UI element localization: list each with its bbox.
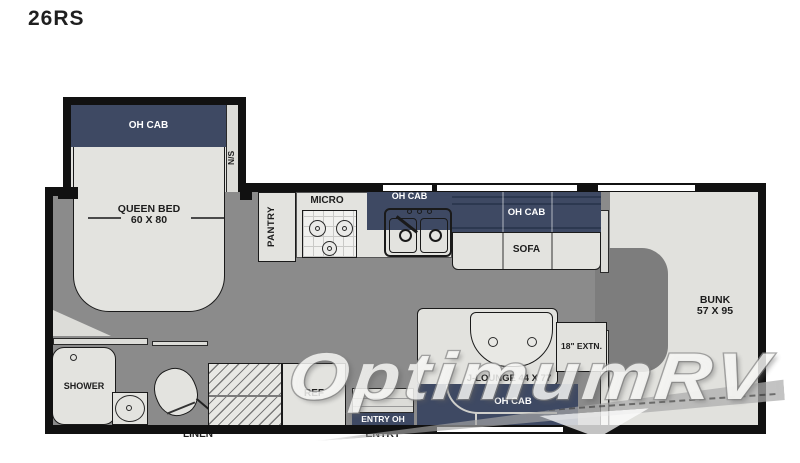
lounge-ohcab-label: OH CAB [480,397,546,407]
window-kitchen [383,185,432,191]
nightstand-label: N/S [227,138,236,178]
rv-floorplan: 26RS BUNK 57 X 95 OH CAB N/S QUEEN BED 6… [0,0,800,463]
sink-drain-right [429,229,442,242]
entry-ohcab-label: ENTRY OH [352,415,414,424]
shower-label: SHOWER [52,382,116,391]
burner-2-center [342,226,347,231]
page-title: 26RS [28,8,85,30]
bath-sink-drain [126,405,132,411]
queen-bed-label: QUEEN BED 60 X 80 [89,204,209,226]
linen-cabinet [208,363,282,427]
pantry [258,192,296,262]
wall-stub-right [240,192,252,200]
entry-door-opening [437,427,563,432]
bedroom-ohcab-label: OH CAB [71,121,226,132]
pantry-label: PANTRY [267,197,277,257]
wall-stub-left [58,192,78,199]
sofa-label: SOFA [452,245,601,256]
sink-drain-left [399,229,412,242]
entry-steps [352,388,414,413]
faucet-handle-2 [417,209,422,214]
window-sofa [437,185,577,191]
sofa-ohcab-label: OH CAB [452,208,601,218]
ref-label: REF [282,389,346,400]
bunk-size: 57 X 95 [697,305,733,317]
extension-label: 18" EXTN. [554,342,609,351]
bath-partition-left [53,338,148,345]
wall-left [45,187,53,434]
wall-right [758,183,766,434]
wall-top-main [238,183,766,192]
cab-wall-strip-upper [600,210,609,273]
wall-bottom [45,425,766,434]
burner-3-center [327,246,332,251]
shower-drain [70,354,77,361]
kitchen-sink [384,208,452,257]
cupholder-2 [527,337,537,347]
micro-label: MICRO [296,196,358,207]
bunk-label: BUNK 57 X 95 [660,295,770,317]
cupholder-1 [488,337,498,347]
window-bunk [598,185,695,191]
queen-bed [73,147,225,312]
bath-partition-right [152,341,208,346]
bed-size: 60 X 80 [131,214,167,226]
faucet-handle-1 [407,209,412,214]
jlounge-label: J-LOUNGE 44 X 77 [459,374,559,384]
faucet-handle-3 [427,209,432,214]
burner-1-center [315,226,320,231]
sink-ohcab-label: OH CAB [367,192,452,201]
